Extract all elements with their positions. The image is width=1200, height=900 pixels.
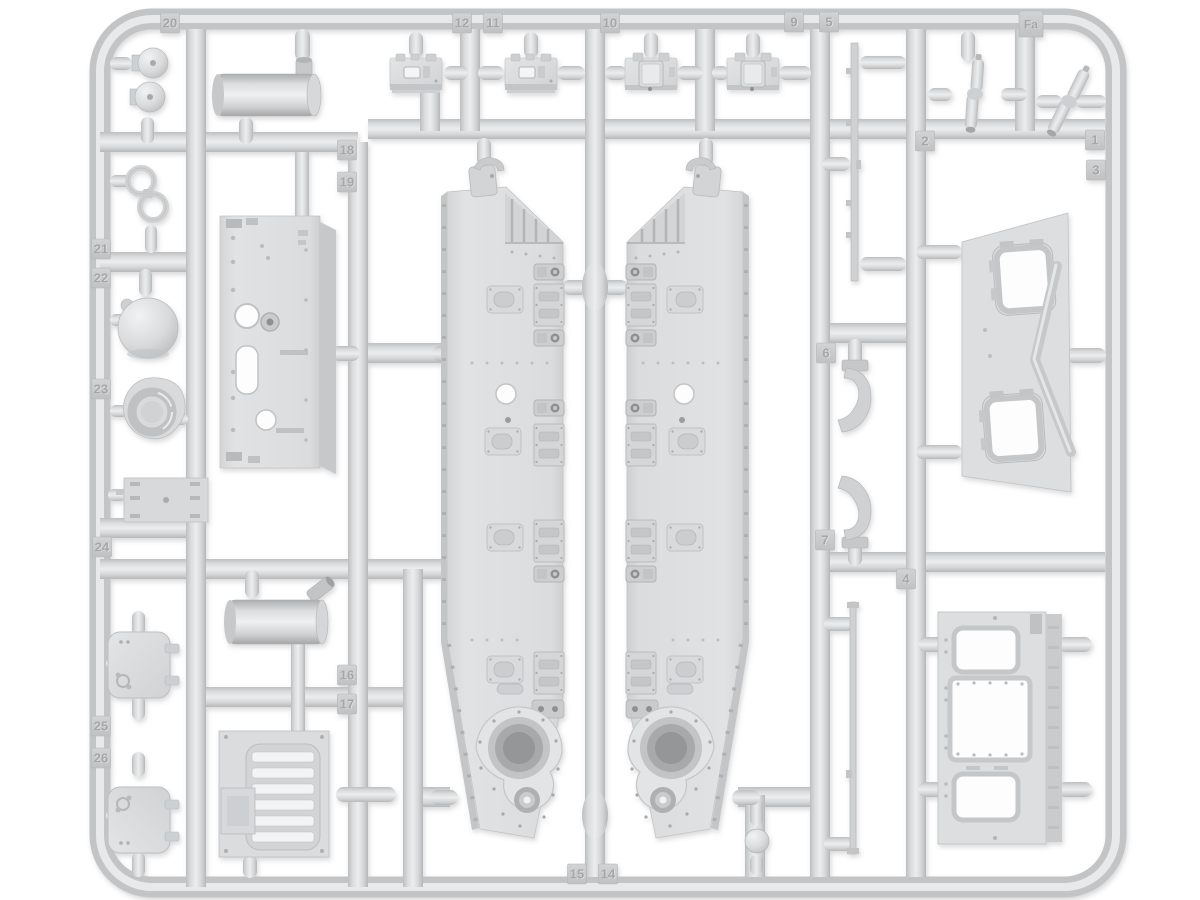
runner-bar (822, 157, 850, 171)
runner-bar (820, 552, 1105, 572)
runner-bar (132, 852, 145, 877)
svg-text:9: 9 (790, 15, 797, 30)
svg-text:11: 11 (486, 16, 500, 31)
runner-bar (732, 790, 760, 805)
part-rod (846, 602, 859, 854)
runner-bar (291, 643, 305, 731)
runner-bar (810, 29, 830, 877)
svg-text:26: 26 (94, 751, 108, 766)
svg-text:4: 4 (902, 572, 910, 587)
svg-text:23: 23 (94, 382, 108, 397)
runner-bar (295, 184, 309, 214)
part-number-tag: 2020 (161, 13, 180, 33)
part-hatch-door-26 (108, 787, 179, 853)
part-number-tag: 1919 (338, 172, 357, 192)
part-7-bracket (838, 476, 871, 548)
runner-bar (478, 66, 504, 80)
part-pipe-clamps (130, 48, 168, 112)
part-number-tag: 2525 (92, 716, 111, 736)
runner-bar (1066, 348, 1106, 363)
part-round-housing (123, 378, 185, 439)
runner-bar (186, 29, 206, 887)
part-11-hatch (505, 54, 557, 93)
part-15-hull-side-left (441, 158, 564, 838)
svg-text:17: 17 (340, 697, 354, 712)
svg-text:7: 7 (821, 533, 828, 548)
part-number-tag: 55 (820, 12, 839, 32)
part-9-hatch (727, 53, 779, 91)
runner-bar (141, 117, 154, 144)
sprue-frame: 2020121211111010995522113318181919212122… (92, 11, 1117, 887)
runner-bar (750, 855, 763, 875)
runner-bar (820, 323, 916, 343)
runner-bar (243, 855, 257, 878)
svg-text:14: 14 (601, 867, 616, 882)
svg-text:Fa: Fa (1024, 18, 1038, 32)
runner-bar (746, 32, 760, 58)
svg-text:21: 21 (94, 242, 108, 257)
runner-bar (1015, 29, 1035, 131)
runner-bar (677, 66, 703, 80)
runner-bar (1058, 782, 1092, 797)
runner-bar (779, 66, 811, 80)
part-fuel-tank-top (212, 57, 321, 116)
runner-bar (295, 29, 310, 61)
runner-bar (245, 570, 259, 598)
part-grille-panel (219, 731, 329, 857)
runner-bar (100, 559, 443, 579)
part-dome-cover (118, 298, 178, 359)
runner-bar (695, 29, 715, 131)
part-ball (745, 829, 769, 853)
svg-text:22: 22 (94, 271, 108, 286)
runner-bar (239, 117, 253, 144)
part-number-tag: 1717 (338, 694, 357, 714)
part-roof-plate (220, 216, 336, 474)
part-number-tag: 1515 (568, 864, 587, 884)
runner-bar (132, 695, 145, 720)
part-number-tag: 2323 (92, 379, 111, 399)
part-number-tag: 99 (785, 12, 804, 32)
part-12-hatch (390, 54, 442, 93)
runner-bar (605, 66, 627, 80)
svg-text:10: 10 (603, 16, 617, 31)
part-number-tag: 1212 (453, 13, 472, 33)
runner-bar (348, 142, 368, 887)
part-number-tag: 33 (1087, 160, 1106, 180)
svg-text:19: 19 (340, 175, 354, 190)
part-number-tag: 1111 (484, 13, 503, 33)
runner-bar (460, 29, 480, 131)
runner-bar (916, 245, 962, 259)
runner-bar (132, 752, 145, 777)
part-fuel-tank-bottom (224, 575, 337, 644)
svg-text:6: 6 (822, 346, 829, 361)
runner-bar (712, 66, 729, 80)
runner-bar (139, 269, 152, 296)
runner-bar (644, 32, 658, 58)
sprue-canvas: 2020121211111010995522113318181919212122… (0, 0, 1200, 900)
runner-bar (860, 257, 906, 271)
part-number-tag: 66 (817, 343, 836, 363)
svg-text:12: 12 (455, 16, 469, 31)
part-14-hull-side-right (626, 158, 749, 838)
part-hatch-door-25 (108, 632, 179, 698)
part-bracket-plate (116, 478, 208, 522)
runner-bar (1058, 637, 1092, 652)
part-6-bracket (838, 360, 871, 432)
runner-bar (824, 617, 854, 631)
runner-bar (1001, 88, 1027, 101)
svg-text:1: 1 (1091, 133, 1098, 148)
part-number-tag: 1616 (338, 665, 357, 685)
svg-text:20: 20 (163, 16, 177, 31)
runner-bar (336, 787, 396, 802)
svg-text:15: 15 (570, 867, 584, 882)
svg-text:3: 3 (1092, 163, 1099, 178)
part-number-tag: 11 (1086, 130, 1105, 150)
svg-text:18: 18 (340, 143, 354, 158)
part-number-tag: 1818 (338, 140, 357, 160)
part-number-tag: 1414 (599, 864, 618, 884)
svg-text:16: 16 (340, 668, 354, 683)
part-10-hatch (625, 53, 677, 91)
part-number-tag: 77 (816, 530, 835, 550)
svg-text:5: 5 (825, 15, 832, 30)
part-number-tag: 2121 (92, 239, 111, 259)
runner-bar (100, 132, 358, 152)
sprue-product-photo: 2020121211111010995522113318181919212122… (0, 0, 1200, 900)
part-tow-shackles (128, 168, 166, 220)
runner-bar (110, 57, 132, 70)
runner-bar (430, 790, 458, 805)
sprue-letter-tag: FaFa (1019, 11, 1043, 37)
runner-bar (403, 569, 423, 887)
svg-text:25: 25 (94, 719, 108, 734)
runner-bar (916, 445, 962, 459)
runner-bar (557, 66, 585, 80)
part-3-front-plate (962, 213, 1071, 492)
part-number-tag: 2626 (92, 748, 111, 768)
part-4-rear-panel (938, 612, 1062, 844)
runner-bar (585, 29, 605, 877)
runner-bar (444, 66, 468, 80)
runner-bar (145, 225, 157, 253)
svg-text:24: 24 (95, 540, 110, 555)
runner-bar (928, 88, 952, 101)
part-number-tag: 1010 (601, 13, 620, 33)
part-number-tag: 22 (916, 131, 935, 151)
runner-bar (100, 252, 196, 272)
svg-text:2: 2 (921, 134, 928, 149)
runner-bar (961, 31, 975, 61)
runner-bar (860, 56, 906, 69)
part-number-tag: 44 (897, 569, 916, 589)
part-number-tag: 2222 (92, 268, 111, 288)
part-number-tag: 2424 (93, 537, 112, 557)
runner-bar (1076, 95, 1106, 108)
